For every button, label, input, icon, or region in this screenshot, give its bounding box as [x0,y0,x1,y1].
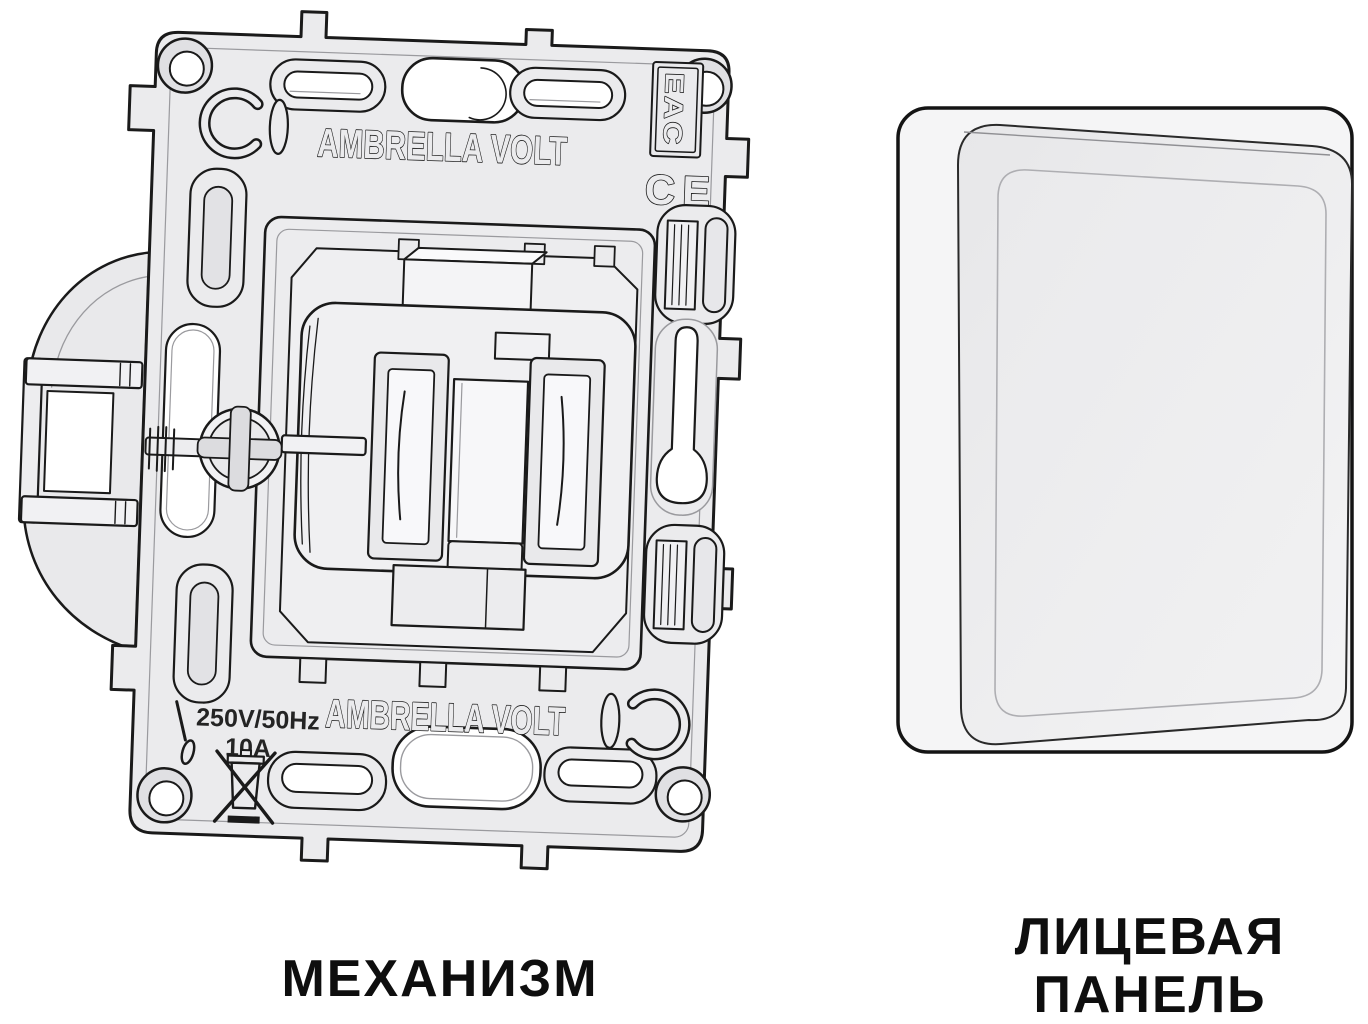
corner-screw-hole [157,38,213,94]
product-figure: EAC CE AMBRELLA VOLT [0,0,1368,1023]
faceplate-illustration [860,70,1368,810]
top-keyhole-slot [401,57,525,123]
voltage-rating-text: 250V/50Hz [196,703,321,735]
mechanism-illustration: EAC CE AMBRELLA VOLT [0,0,790,900]
side-clip [643,524,725,645]
brand-embossing-top: AMBRELLA VOLT [317,121,568,174]
side-clip [654,204,736,325]
caption-faceplate-line2: ПАНЕЛЬ [950,966,1350,1024]
terminal-block-bottom [392,565,526,630]
faceplate-bevel [995,170,1326,716]
caption-faceplate: ЛИЦЕВАЯ ПАНЕЛЬ [950,908,1350,1024]
bottom-fixing-slot [267,751,387,811]
side-keyhole-slot [650,318,719,516]
caption-mechanism-text: МЕХАНИЗМ [281,950,598,1008]
caption-faceplate-line1: ЛИЦЕВАЯ [950,908,1350,966]
side-slot [187,168,248,308]
svg-text:EAC: EAC [657,72,690,147]
caption-mechanism: МЕХАНИЗМ [95,950,785,1008]
corner-screw-hole [655,766,711,822]
mounting-claw [15,248,150,650]
side-slot [173,564,234,704]
top-fixing-slot [269,59,386,113]
corner-screw-hole [137,767,193,823]
brand-embossing-bottom: AMBRELLA VOLT [325,692,566,744]
eac-certification-mark: EAC [650,62,703,158]
top-fixing-slot [509,67,626,121]
